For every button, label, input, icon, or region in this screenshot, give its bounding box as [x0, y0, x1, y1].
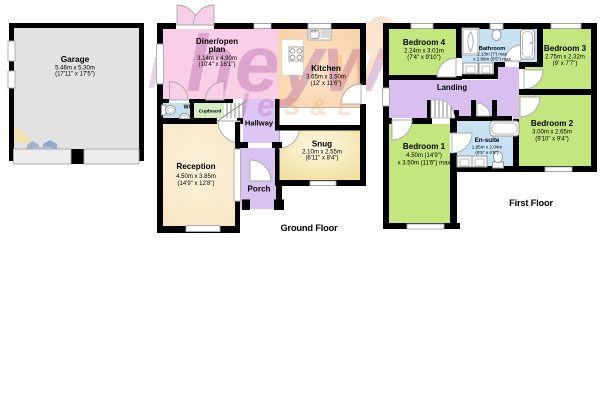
svg-text:plan: plan	[209, 45, 226, 54]
svg-text:First Floor: First Floor	[509, 198, 553, 208]
svg-text:Reception: Reception	[176, 162, 215, 171]
svg-text:Bedroom 2: Bedroom 2	[531, 119, 574, 128]
svg-text:3.00m x 2.65m: 3.00m x 2.65m	[532, 130, 572, 136]
svg-text:4.50m (14'9"): 4.50m (14'9")	[406, 153, 442, 159]
svg-text:3.65m x 3.50m: 3.65m x 3.50m	[306, 75, 346, 81]
svg-text:x 3.50m (11'6") max: x 3.50m (11'6") max	[398, 161, 451, 167]
svg-text:Bedroom 3: Bedroom 3	[544, 44, 587, 53]
svg-text:(12' x 11'6"): (12' x 11'6")	[311, 81, 342, 87]
svg-text:Garage: Garage	[61, 54, 90, 64]
svg-text:WC: WC	[184, 105, 193, 111]
svg-text:Bedroom 1: Bedroom 1	[403, 142, 446, 151]
svg-text:(9' x 7'7"): (9' x 7'7")	[553, 61, 578, 67]
svg-text:(7'4" x 9'10"): (7'4" x 9'10")	[407, 55, 441, 61]
svg-text:x 2.86m (9'5") max: x 2.86m (9'5") max	[473, 57, 511, 62]
svg-text:1.95m x 2.04m: 1.95m x 2.04m	[472, 145, 503, 150]
svg-text:(17'11" x 17'5"): (17'11" x 17'5")	[55, 72, 95, 78]
svg-text:(9'10" x 9'4"): (9'10" x 9'4")	[535, 137, 569, 143]
svg-text:(6'5" x 6'8"): (6'5" x 6'8")	[475, 150, 499, 155]
svg-text:Ground Floor: Ground Floor	[281, 223, 339, 233]
svg-text:4.50m x 3.85m: 4.50m x 3.85m	[176, 174, 216, 180]
svg-text:(14'9" x 12'8"): (14'9" x 12'8")	[178, 181, 215, 187]
svg-text:Bedroom 4: Bedroom 4	[403, 38, 446, 47]
svg-text:Kitchen: Kitchen	[311, 64, 341, 73]
svg-text:En-suite: En-suite	[475, 137, 500, 144]
svg-text:Cupboard: Cupboard	[199, 109, 222, 115]
svg-text:Snug: Snug	[312, 140, 332, 149]
svg-text:Landing: Landing	[437, 83, 468, 92]
svg-text:2.24m x 3.01m: 2.24m x 3.01m	[404, 49, 444, 55]
svg-text:2.75m x 2.32m: 2.75m x 2.32m	[545, 55, 585, 61]
svg-text:(10'4" x 16'1"): (10'4" x 16'1")	[199, 62, 236, 68]
svg-text:(6'11" x 8'4"): (6'11" x 8'4")	[305, 156, 338, 162]
svg-text:Hallway: Hallway	[245, 119, 274, 128]
svg-text:Porch: Porch	[248, 185, 271, 194]
